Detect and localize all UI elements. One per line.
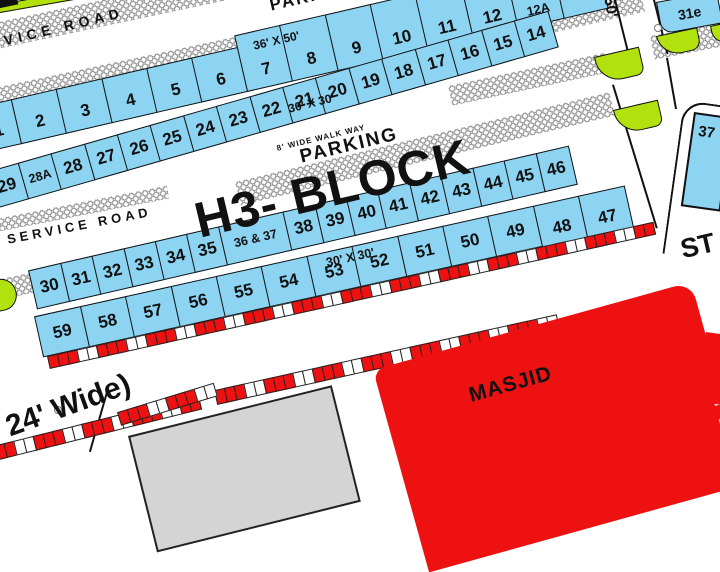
plot-number: 50 (459, 229, 482, 253)
plot-number: 47 (596, 205, 619, 229)
plot-number: 1 (0, 120, 6, 142)
plot-number: 2 (33, 110, 47, 132)
plot-number: 56 (187, 290, 210, 314)
plot-number: 18 (392, 60, 416, 84)
plot-number: 8 (305, 48, 319, 70)
green-corner (613, 100, 664, 136)
masjid-building: MASJID (373, 282, 720, 572)
street-edge-line (666, 58, 677, 110)
plot-number: 15 (491, 31, 515, 55)
plot-number: 30 (38, 274, 61, 298)
plot-number: 45 (513, 164, 536, 188)
plot-number: 34 (164, 245, 187, 269)
plot-number: 14 (524, 22, 548, 46)
plot-number: 33 (133, 252, 156, 276)
plot-number: 7 (259, 58, 273, 80)
plot-number: 59 (51, 320, 74, 344)
plot-number: 3 (79, 100, 93, 122)
plot-number: 55 (232, 280, 255, 304)
plot-number: 29 (0, 174, 19, 198)
plot-number: 25 (161, 126, 185, 150)
plot-number: 5 (169, 79, 183, 101)
plot-number: 31 (70, 267, 93, 291)
plot-number: 26 (127, 136, 151, 160)
plot-number: 4 (124, 90, 138, 112)
plot-number: 49 (504, 219, 527, 243)
plot-number: 57 (142, 300, 165, 324)
plot-number: 46 (545, 157, 568, 181)
plot-number: 11 (436, 16, 458, 40)
plot-number: 28A (27, 166, 53, 186)
plot-number: 17 (425, 50, 449, 74)
plot-number: 23 (227, 107, 251, 131)
plot-number: 10 (391, 26, 414, 50)
survey-marker (654, 24, 662, 32)
road-50-label: 50' (601, 0, 620, 19)
plot-number: 32 (101, 260, 124, 284)
plot-number: 16 (458, 41, 482, 65)
plot-number: 54 (278, 270, 301, 294)
plot-number: 27 (94, 145, 118, 169)
masjid-label: MASJID (467, 363, 555, 406)
plot-number: 22 (260, 98, 284, 122)
plot-number: 37 (697, 123, 716, 142)
plot-number: 6 (214, 69, 228, 91)
plot-number: 48 (551, 215, 574, 239)
plot-number: 24 (194, 117, 218, 141)
plot-number: 51 (413, 239, 436, 263)
plot-number: 31e (677, 3, 703, 23)
plot-number: 28 (61, 155, 85, 179)
plot-number: 9 (350, 37, 364, 59)
plot-number: 19 (359, 69, 383, 93)
plot-number: 58 (96, 310, 119, 334)
plot-number: 44 (482, 172, 505, 196)
site-plan-map: 12345678910111212A2928A28272625242322212… (0, 0, 720, 450)
